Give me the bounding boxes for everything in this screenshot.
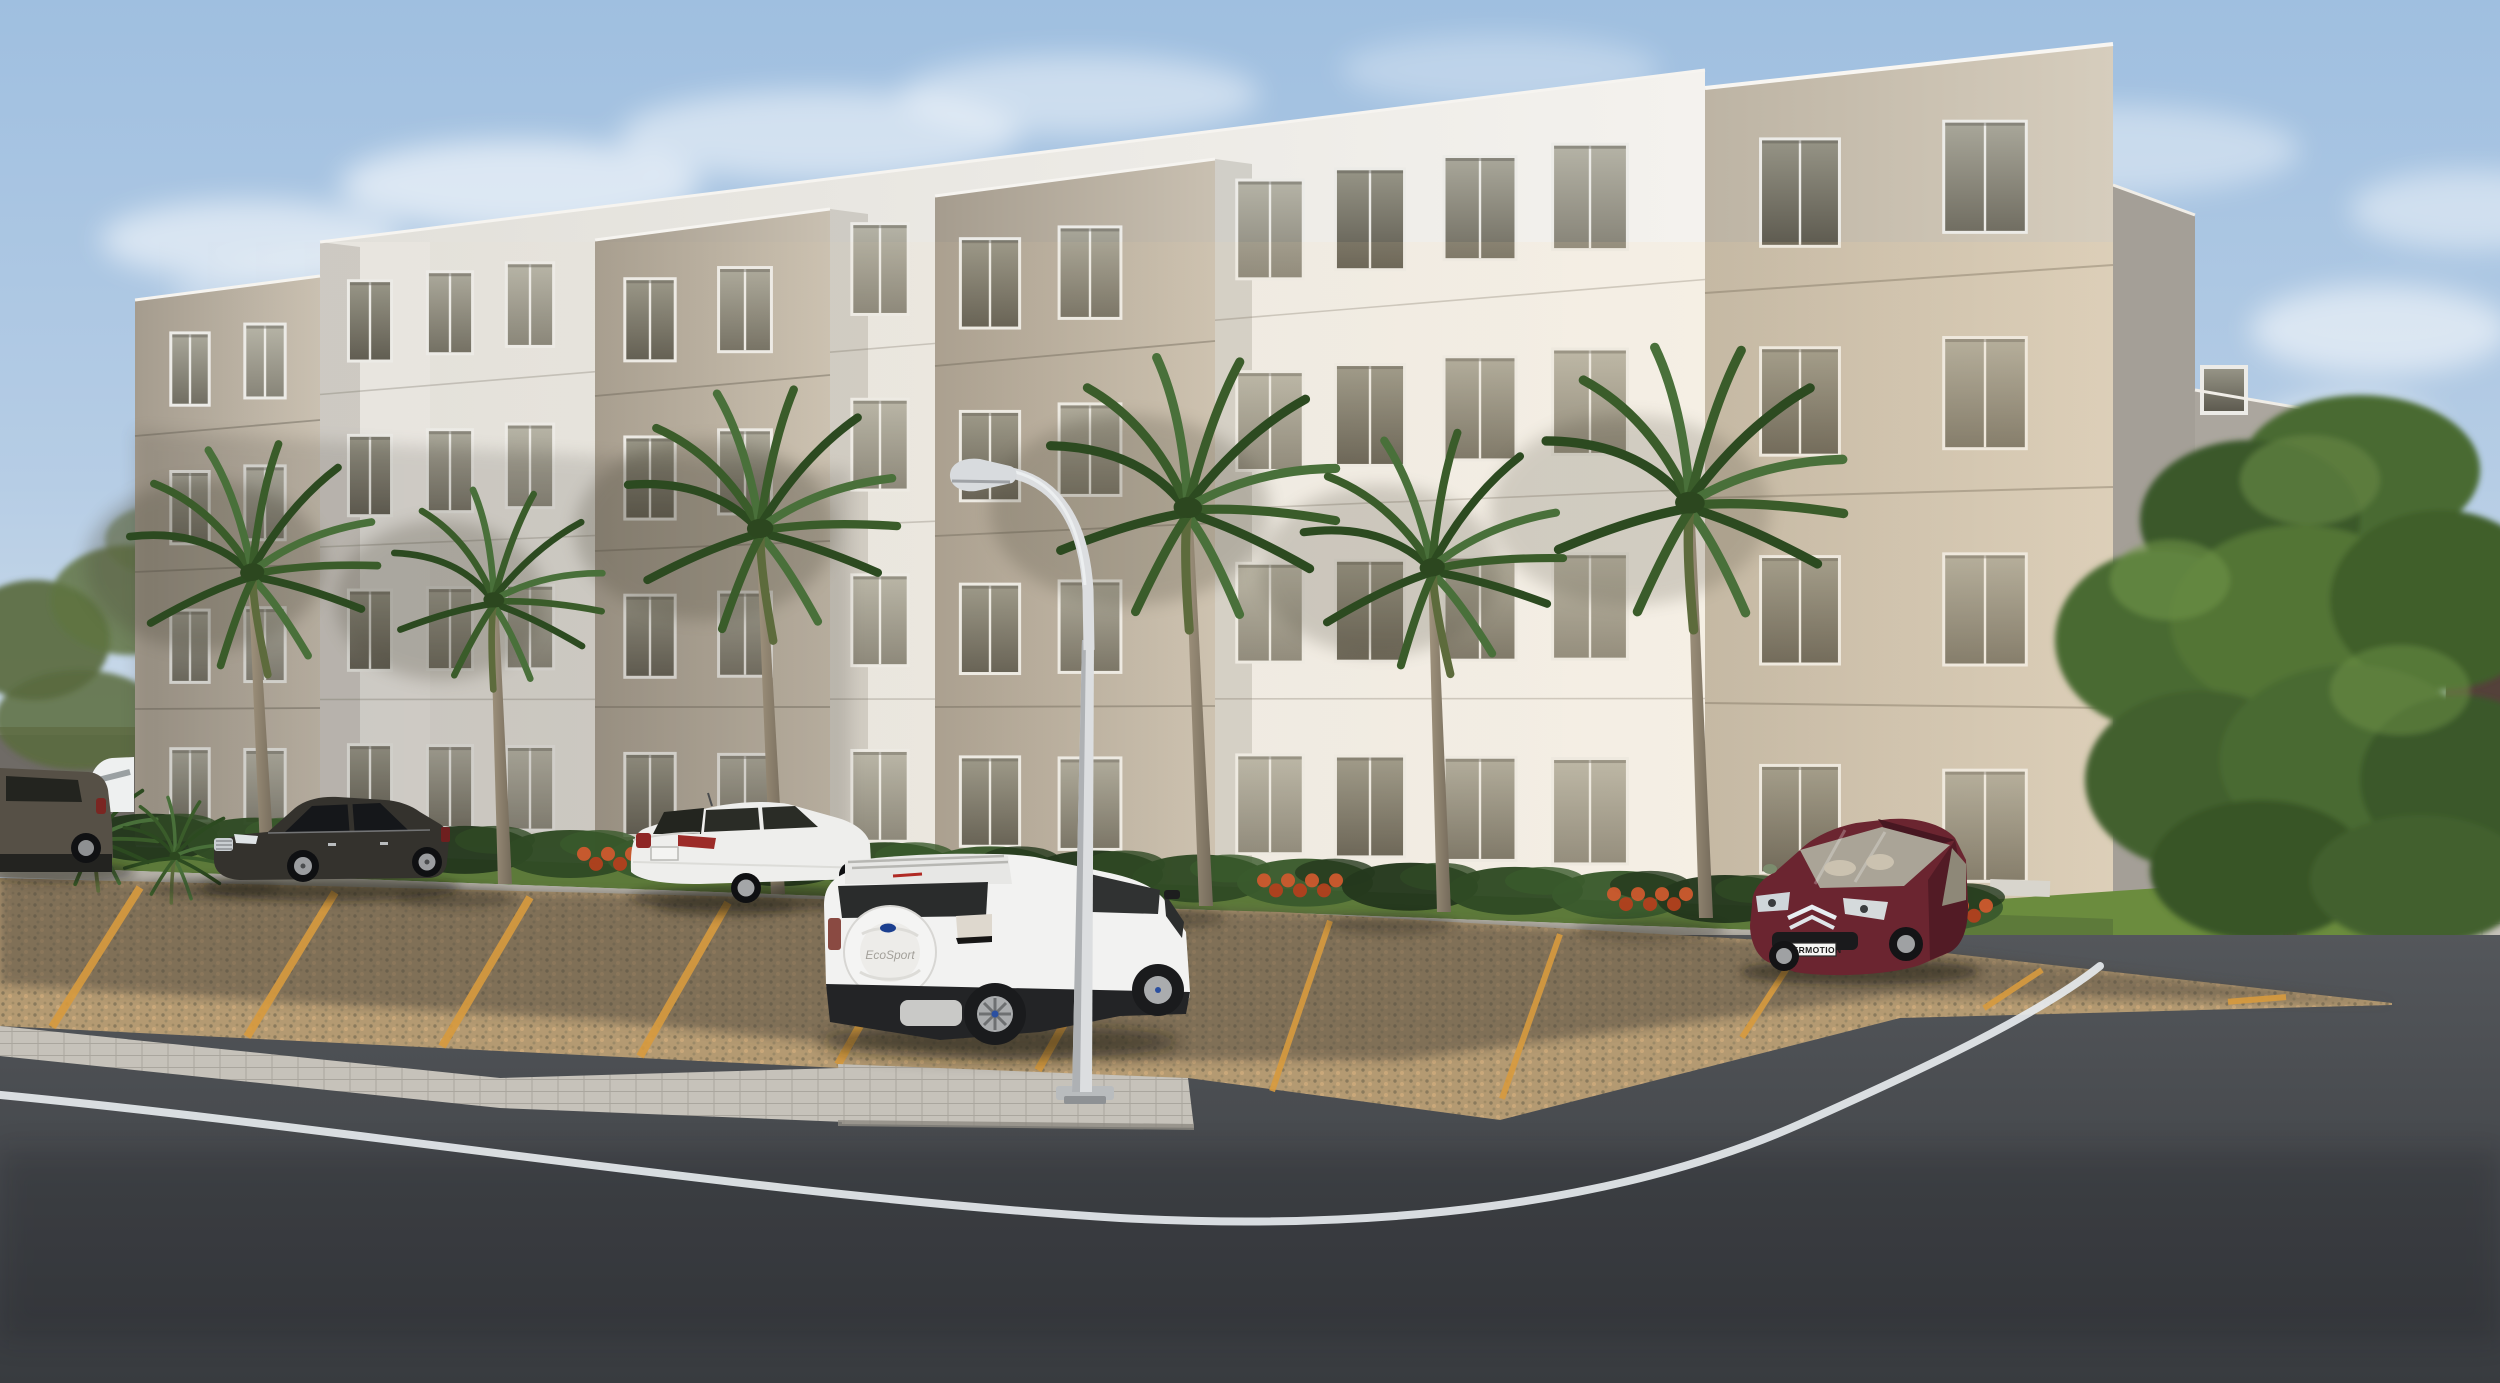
road-shadow-band — [0, 1150, 2500, 1340]
scene-canvas: .pf{fill:none;stroke-width:7;stroke-line… — [0, 0, 2500, 1383]
spare-tire-badge: EcoSport — [865, 948, 915, 962]
architectural-rendering: .pf{fill:none;stroke-width:7;stroke-line… — [0, 0, 2500, 1383]
